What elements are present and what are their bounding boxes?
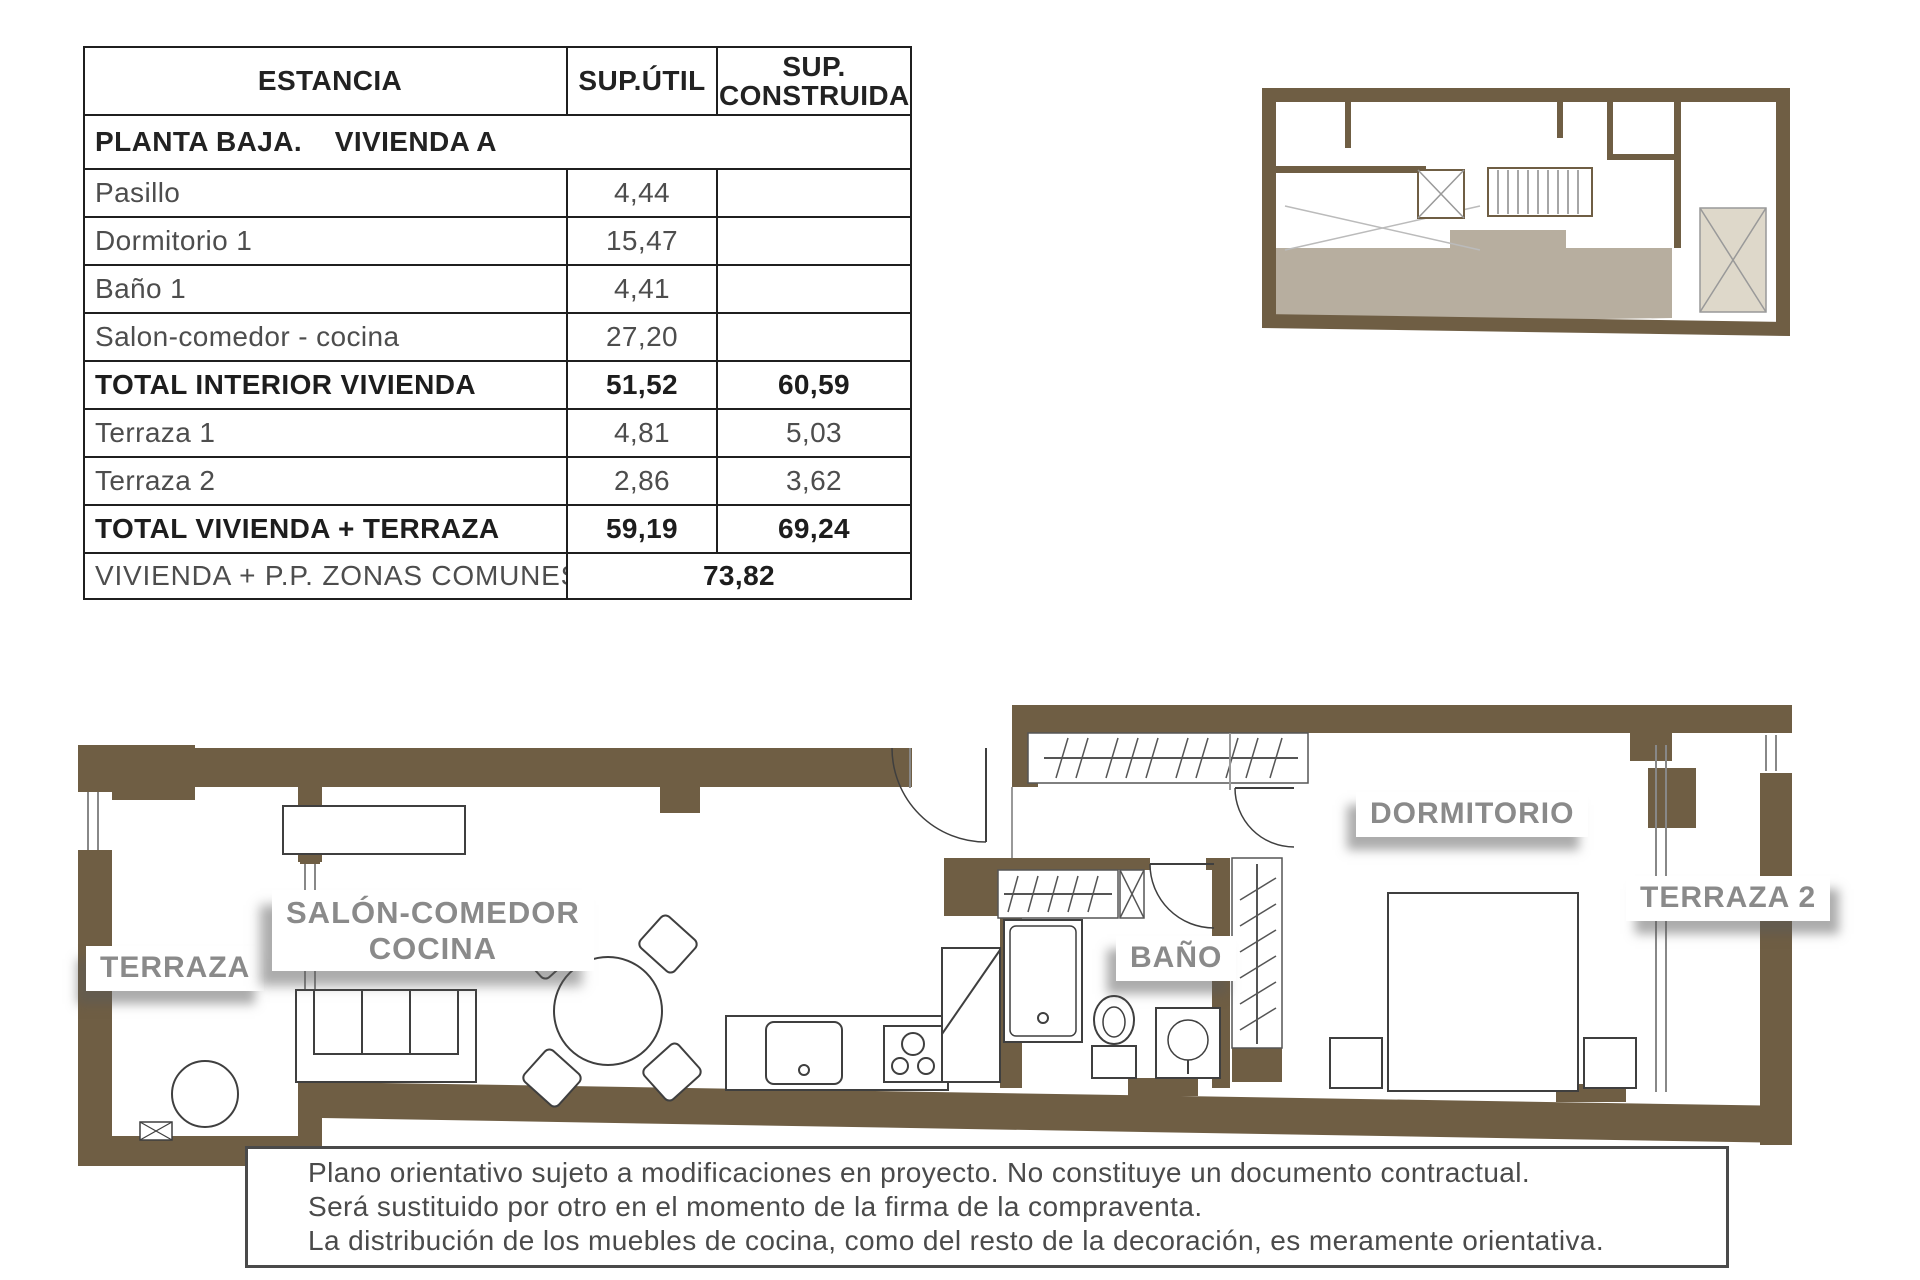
bath-closet xyxy=(998,870,1118,918)
plan-canvas xyxy=(0,0,1920,1280)
highlighted-unit xyxy=(1276,230,1672,324)
duct-shaft xyxy=(1120,870,1144,918)
floor-plan-sheet: { "colors": { "wall_brown": "#6f5e44", "… xyxy=(0,0,1920,1280)
bedroom-door xyxy=(1235,788,1294,847)
mini-locator-plan xyxy=(1262,88,1790,336)
terrace-street-window xyxy=(78,792,112,850)
disclaimer-box: Plano orientativo sujeto a modificacione… xyxy=(245,1146,1729,1268)
bedroom-door-arc xyxy=(1235,788,1294,847)
bed xyxy=(1330,893,1636,1091)
label-salon-line1: SALÓN-COMEDOR xyxy=(286,895,580,931)
dining-chair xyxy=(637,913,699,975)
nightstand-right xyxy=(1584,1038,1636,1088)
washing-machine xyxy=(172,1061,238,1127)
label-terraza: TERRAZA xyxy=(86,946,264,991)
sideboard xyxy=(283,806,465,854)
mini-stairs xyxy=(1488,168,1592,216)
label-salon-line2: COCINA xyxy=(286,931,580,967)
label-salon-comedor-cocina: SALÓN-COMEDOR COCINA xyxy=(272,890,594,971)
disclaimer-line: Plano orientativo sujeto a modificacione… xyxy=(308,1156,1706,1190)
sofa xyxy=(296,990,476,1082)
mini-elevator xyxy=(1418,170,1464,218)
washbasin xyxy=(1156,1008,1220,1078)
label-dormitorio: DORMITORIO xyxy=(1356,792,1588,837)
disclaimer-line: Será sustituido por otro en el momento d… xyxy=(308,1190,1706,1224)
kitchen-counter xyxy=(726,1016,948,1090)
floor-drain xyxy=(140,1122,172,1140)
tall-cabinet xyxy=(942,948,1000,1082)
bathroom-door-arc xyxy=(1150,864,1214,928)
disclaimer-line: La distribución de los muebles de cocina… xyxy=(308,1224,1706,1258)
mini-patio xyxy=(1700,208,1766,312)
shower xyxy=(1004,920,1082,1042)
toilet xyxy=(1092,996,1136,1078)
label-terraza-2: TERRAZA 2 xyxy=(1626,876,1830,921)
wardrobe xyxy=(1232,858,1282,1048)
nightstand-left xyxy=(1330,1038,1382,1088)
label-bano: BAÑO xyxy=(1116,936,1236,981)
corner-window xyxy=(1766,735,1776,771)
hall-closet xyxy=(1028,733,1308,783)
bathroom-door xyxy=(1150,864,1214,928)
